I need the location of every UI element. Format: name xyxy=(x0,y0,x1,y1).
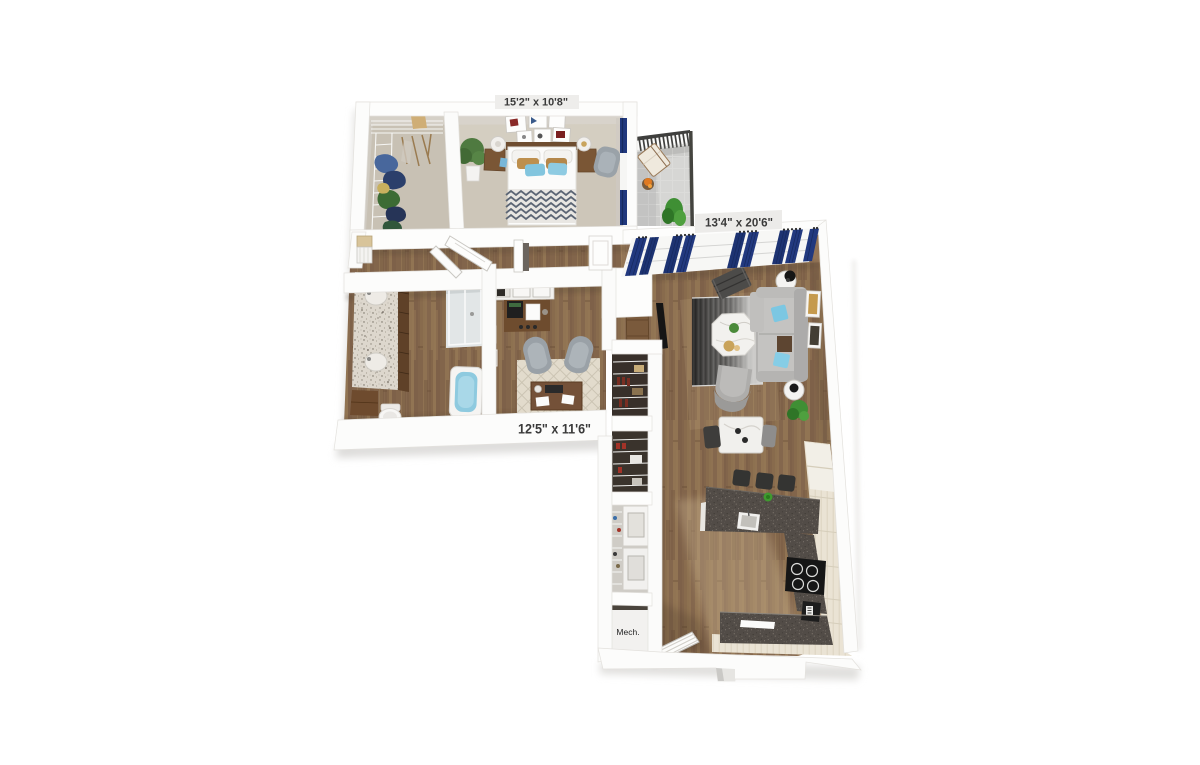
svg-text:15'2" x 10'8": 15'2" x 10'8" xyxy=(504,97,568,109)
svg-text:12'5" x 11'6": 12'5" x 11'6" xyxy=(518,421,591,437)
svg-text:Mech.: Mech. xyxy=(616,627,639,637)
svg-text:13'4" x 20'6": 13'4" x 20'6" xyxy=(705,216,773,230)
